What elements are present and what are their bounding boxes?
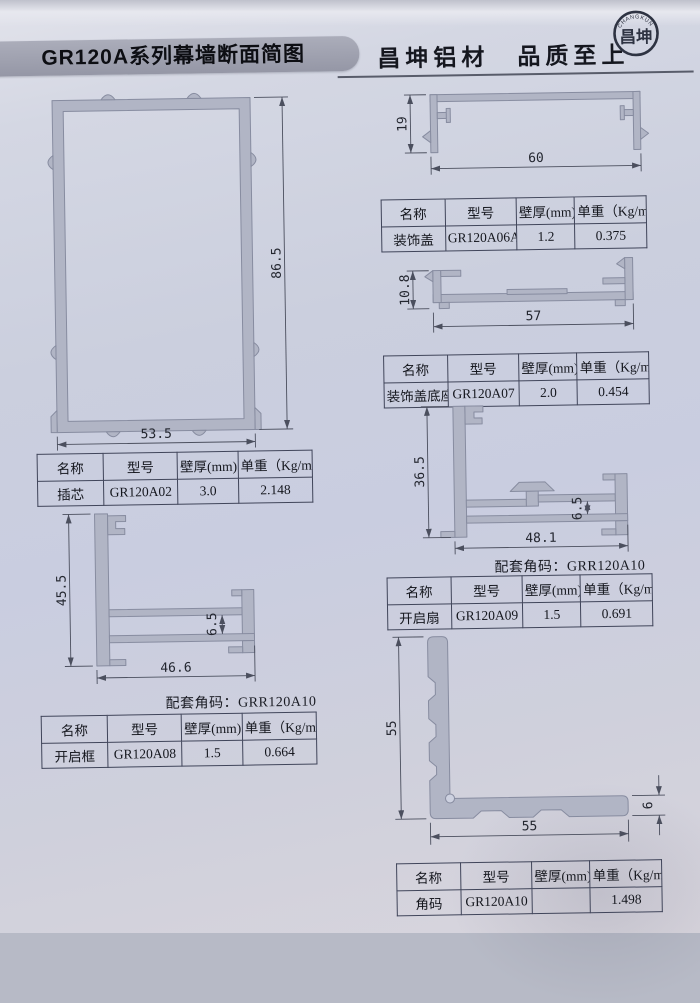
col-header-thickness: 壁厚(mm) — [519, 353, 578, 381]
col-header-thickness: 壁厚(mm) — [181, 713, 242, 741]
cell-weight: 2.148 — [238, 477, 313, 503]
profile-shape — [95, 512, 255, 666]
profile-drawing-zhuangshigai: 19 60 — [384, 79, 668, 183]
cell-model: GR120A06A — [445, 225, 517, 251]
dim-height: 36.5 — [412, 406, 451, 538]
col-header-weight: 单重（Kg/m） — [590, 860, 662, 888]
spec-table-jiaoma: 名称 型号 壁厚(mm) 单重（Kg/m） 角码 GR120A10 1.498 — [396, 859, 663, 916]
col-header-name: 名称 — [397, 863, 461, 891]
corner-relief-hole — [445, 794, 454, 803]
col-header-weight: 单重（Kg/m） — [242, 712, 317, 740]
col-header-model: 型号 — [445, 198, 517, 226]
dim-height: 86.5 — [254, 97, 293, 429]
cell-name: 开启扇 — [387, 604, 451, 630]
dim-width: 57 — [433, 304, 633, 333]
profile-shape — [52, 98, 255, 433]
col-header-model: 型号 — [107, 714, 182, 742]
dim-gap: 6.5 — [570, 497, 587, 521]
dim-height: 55 — [383, 637, 426, 820]
dim-gap: 6.5 — [205, 612, 222, 636]
cell-thickness: 1.2 — [517, 224, 576, 250]
dim-label: 60 — [528, 151, 544, 166]
profile-shape — [425, 258, 634, 309]
dim-height: 45.5 — [54, 514, 93, 667]
brand-slogan: 昌坤铝材 品质至上 — [377, 36, 630, 74]
dim-width: 55 — [430, 818, 628, 845]
profile-shape — [439, 404, 628, 538]
cell-thickness: 1.5 — [182, 740, 243, 766]
spec-table-kaiqishan: 名称 型号 壁厚(mm) 单重（Kg/m） 开启扇 GR120A09 1.5 0… — [387, 573, 654, 630]
profile-drawing-jiaoma: 55 55 6 — [370, 625, 700, 860]
cell-weight: 1.498 — [590, 887, 662, 913]
col-header-thickness: 壁厚(mm) — [177, 451, 238, 479]
profile-nubs — [46, 92, 261, 437]
cell-name: 角码 — [397, 890, 461, 916]
dim-thickness: 6 — [632, 775, 666, 836]
cell-name: 装饰盖 — [382, 226, 446, 252]
col-header-model: 型号 — [103, 452, 178, 480]
spec-table-zhuangshigai: 名称 型号 壁厚(mm) 单重（Kg/m） 装饰盖 GR120A06A 1.2 … — [381, 195, 648, 252]
dim-label: 86.5 — [269, 247, 284, 279]
dim-label: 55 — [522, 819, 538, 834]
dim-label: 6.5 — [205, 612, 220, 636]
matching-bracket-note: 配套角码：GRR120A10 — [60, 691, 316, 715]
dim-label: 6.5 — [570, 497, 585, 521]
cell-name: 开启框 — [42, 742, 108, 768]
dim-label: 45.5 — [54, 575, 69, 607]
col-header-weight: 单重（Kg/m） — [580, 574, 652, 602]
page-title: GR120A系列幕墙断面简图 — [41, 37, 305, 76]
profile-shape — [427, 634, 628, 819]
dim-label: 57 — [526, 309, 542, 324]
cell-model: GR120A10 — [461, 889, 533, 915]
col-header-model: 型号 — [460, 862, 532, 890]
brand-logo-icon: CHANGKUN 昌坤 — [611, 8, 662, 59]
spec-table-kaiqikuang: 名称 型号 壁厚(mm) 单重（Kg/m） 开启框 GR120A08 1.5 0… — [41, 712, 318, 769]
cell-thickness: 1.5 — [523, 602, 582, 628]
col-header-name: 名称 — [387, 577, 451, 605]
dim-width: 60 — [431, 149, 641, 174]
col-header-weight: 单重（Kg/m） — [238, 450, 313, 478]
col-header-name: 名称 — [41, 715, 107, 743]
cell-model: GR120A08 — [108, 741, 183, 767]
dim-label: 36.5 — [413, 456, 428, 488]
dim-label: 10.8 — [398, 274, 413, 306]
profile-drawing-kaiqishan: 36.5 6.5 48.1 — [391, 393, 685, 558]
dim-label: 55 — [385, 720, 400, 736]
col-header-name: 名称 — [37, 453, 103, 481]
col-header-name: 名称 — [381, 199, 445, 227]
cell-model: GR120A02 — [103, 479, 178, 505]
col-header-weight: 单重（Kg/m） — [575, 196, 647, 224]
col-header-model: 型号 — [447, 354, 519, 382]
col-header-thickness: 壁厚(mm) — [522, 575, 581, 603]
cell-name: 插芯 — [37, 480, 103, 506]
profile-drawing-kaiqikuang: 45.5 6.5 46.6 — [24, 500, 333, 687]
col-header-thickness: 壁厚(mm) — [516, 197, 575, 225]
dim-label: 46.6 — [160, 661, 192, 676]
dim-label: 53.5 — [140, 427, 172, 442]
dim-label: 6 — [641, 801, 656, 809]
dim-label: 48.1 — [525, 531, 557, 546]
catalog-sheet: GR120A系列幕墙断面简图 昌坤铝材 品质至上 CHANGKUN 昌坤 86.… — [0, 0, 700, 938]
profile-shape — [422, 91, 649, 153]
cell-thickness — [532, 888, 591, 914]
profile-drawing-zhuangshigaidizuo: 10.8 57 — [386, 249, 670, 353]
logo-cn-text: 昌坤 — [619, 26, 652, 47]
col-header-model: 型号 — [451, 576, 523, 604]
col-header-name: 名称 — [384, 355, 448, 383]
cell-weight: 0.375 — [575, 223, 647, 249]
cell-model: GR120A09 — [451, 603, 523, 629]
col-header-weight: 单重（Kg/m） — [577, 352, 649, 380]
profile-drawing-chaxin: 86.5 53.5 — [22, 87, 318, 456]
spec-table-chaxin: 名称 型号 壁厚(mm) 单重（Kg/m） 插芯 GR120A02 3.0 2.… — [37, 450, 314, 507]
dim-label: 19 — [395, 116, 410, 132]
cell-weight: 0.691 — [581, 601, 653, 627]
cell-weight: 0.664 — [242, 739, 317, 765]
title-banner: GR120A系列幕墙断面简图 — [0, 36, 360, 77]
cell-thickness: 3.0 — [178, 478, 239, 504]
col-header-thickness: 壁厚(mm) — [532, 861, 591, 889]
dim-height: 19 — [395, 95, 427, 153]
